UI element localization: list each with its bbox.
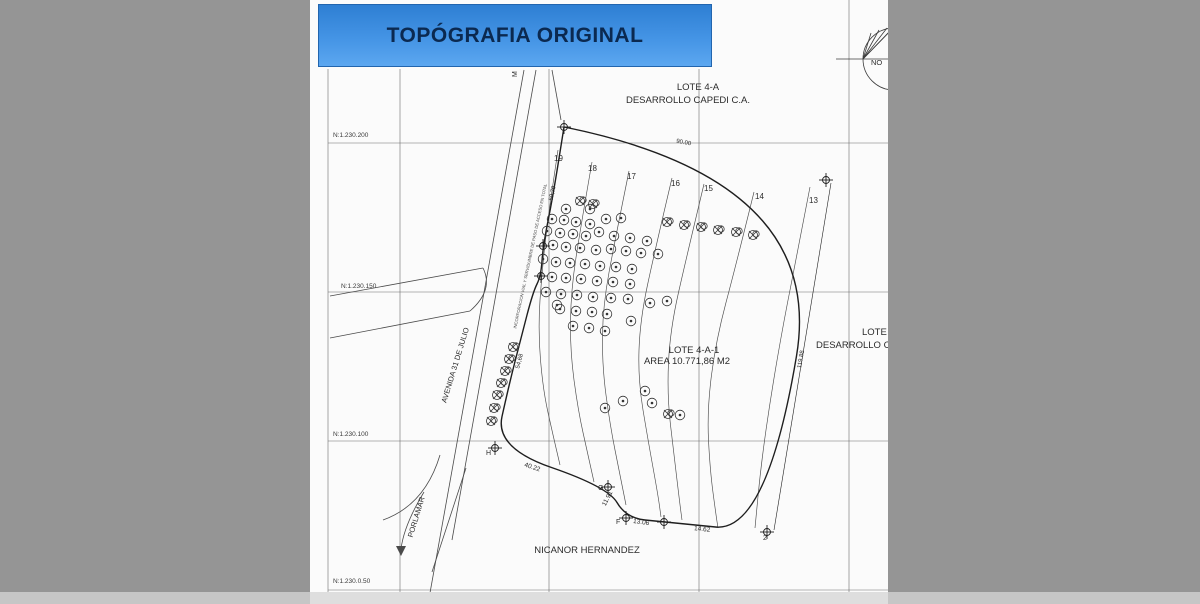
label-easement-note: INCORPORACION VIAL Y SERVIDUMBRE DE PASO… [512, 178, 550, 336]
label-contour-18: 18 [588, 164, 597, 173]
label-parcel-area: AREA 10.771,86 M2 [607, 357, 767, 368]
grid-label-n150: N:1.230.150 [341, 283, 376, 290]
survey-plan-page: N:1.230.200 N:1.230.150 N:1.230.100 N:1.… [0, 0, 1200, 604]
page-title: TOPÓGRAFIA ORIGINAL [387, 24, 644, 48]
label-east-owner: DESARROLLO CA [816, 341, 897, 352]
label-south-owner: NICANOR HERNANDEZ [507, 546, 667, 557]
label-street-porlamar: PORLAMAR [400, 473, 435, 562]
label-contour-13: 13 [809, 196, 818, 205]
label-contour-15: 15 [704, 184, 713, 193]
label-dim-54-68: 54,68 [515, 353, 526, 369]
label-dim-90-00: 90.00 [675, 139, 691, 149]
label-north-owner: DESARROLLO CAPEDI C.A. [608, 96, 768, 107]
label-vertex-G: G [598, 485, 603, 493]
label-vertex-F: F [616, 519, 620, 527]
gray-right-panel [888, 0, 1200, 604]
grid-label-n100: N:1.230.100 [333, 431, 368, 438]
grid-label-n050: N:1.230.0.50 [333, 578, 370, 585]
label-contour-14: 14 [755, 192, 764, 201]
label-dim-50-79: 50,79 [549, 185, 559, 201]
label-dim-14-62: 14.62 [694, 525, 711, 534]
label-contour-16: 16 [671, 179, 680, 188]
label-dim-119-88: 119.88 [797, 350, 807, 369]
label-vertex-2: 2 [763, 535, 767, 543]
label-north-lot: LOTE 4-A [648, 83, 748, 94]
horizontal-scrollbar-track[interactable] [0, 592, 1200, 604]
label-dim-40-22: 40.22 [523, 462, 541, 474]
label-east-lot: LOTE [862, 328, 887, 339]
label-street-m: M [512, 71, 520, 77]
horizontal-scrollbar-thumb[interactable] [310, 592, 888, 604]
label-vertex-H: H [486, 450, 491, 458]
gray-left-panel [0, 0, 310, 604]
title-banner: TOPÓGRAFIA ORIGINAL [318, 4, 712, 67]
label-contour-19: 19 [554, 154, 563, 163]
label-street-avenida: AVENIDA 31 DE JULIO [434, 307, 477, 424]
grid-label-n200: N:1.230.200 [333, 132, 368, 139]
label-contour-17: 17 [627, 172, 636, 181]
label-dim-13-06: 13.06 [633, 518, 650, 528]
north-symbol-label: NO [871, 59, 882, 68]
